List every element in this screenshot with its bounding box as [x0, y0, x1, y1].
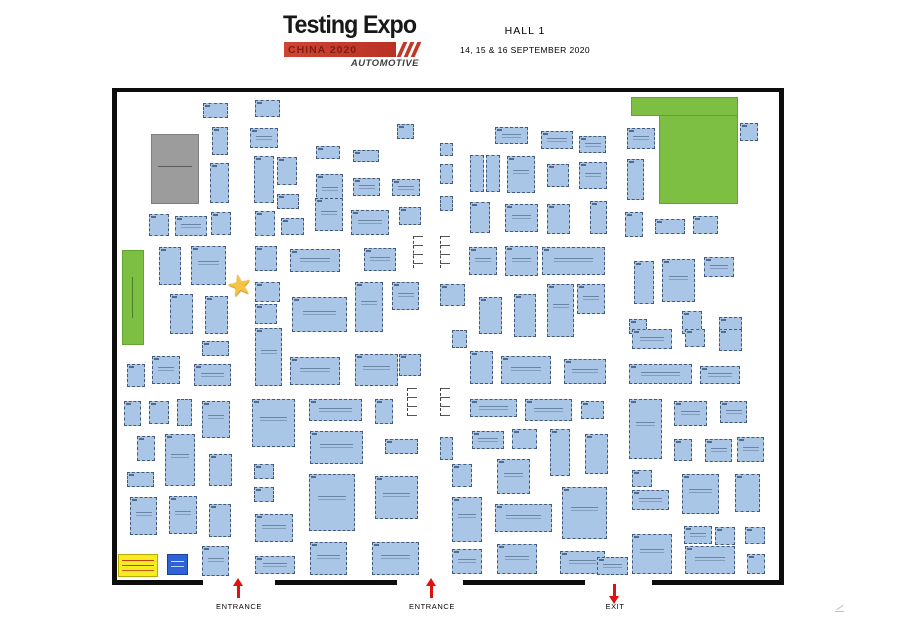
booth: [514, 294, 536, 337]
booth: [632, 329, 672, 349]
booth: [693, 216, 718, 234]
booth: [250, 128, 278, 148]
booth: [392, 282, 419, 310]
booth: [254, 156, 274, 203]
floor-plan: VISITOR RELAXATION AREA ★ ENTRANCEENTRAN…: [0, 0, 900, 636]
booth: [290, 357, 340, 385]
booth: [309, 474, 355, 531]
booth: [440, 437, 453, 460]
zone-relaxation-strip: [122, 250, 144, 345]
booth: [472, 431, 504, 449]
booth: [627, 159, 644, 200]
booth: [719, 329, 742, 351]
booth: [124, 401, 141, 426]
booth: [747, 554, 765, 574]
booth: [170, 294, 193, 334]
booth: [674, 401, 707, 426]
booth: [740, 123, 758, 141]
booth: [547, 284, 574, 337]
booth: [177, 399, 192, 426]
booth: [590, 201, 607, 234]
booth: [629, 399, 662, 459]
hall-wall: [463, 580, 585, 585]
booth: [252, 399, 295, 447]
expo-map-page: Testing Expo CHINA 2020 AUTOMOTIVE HALL …: [0, 0, 900, 636]
booth: [542, 247, 605, 275]
booth: [440, 196, 453, 211]
booth: [629, 364, 692, 384]
booth: [470, 155, 484, 192]
hall-wall: [779, 88, 784, 585]
booth: [152, 356, 180, 384]
booth: [372, 542, 419, 575]
hall-wall: [275, 580, 397, 585]
booth: [440, 143, 453, 156]
booth: [470, 351, 493, 384]
booth: [149, 401, 169, 424]
booth: [254, 464, 274, 479]
hall-wall: [112, 580, 203, 585]
booth: [634, 261, 654, 304]
booth: [685, 329, 705, 347]
booth: [562, 487, 607, 539]
booth: [211, 212, 231, 235]
hall-wall: [112, 88, 117, 585]
booth: [290, 249, 340, 272]
zone-organiser-block: [151, 134, 199, 204]
booth: [720, 401, 747, 423]
booth: [632, 470, 652, 487]
booth: [255, 304, 277, 324]
booth: [255, 100, 280, 117]
booth: [541, 131, 573, 149]
booth: [292, 297, 347, 332]
booth: [674, 439, 692, 461]
booth: [309, 399, 362, 421]
booth: [495, 127, 528, 144]
booth: [137, 436, 155, 461]
booth: [254, 487, 274, 502]
zone-relaxation-top: [631, 97, 738, 116]
booth: [512, 429, 537, 449]
booth: [351, 210, 389, 235]
booth: [127, 364, 145, 387]
booth: [277, 194, 299, 209]
booth: [130, 497, 157, 535]
booth: [315, 198, 343, 231]
booth: [203, 103, 228, 118]
booth: [497, 544, 537, 574]
booth: [470, 399, 517, 417]
booth: [501, 356, 551, 384]
booth: [497, 459, 530, 494]
booth: [149, 214, 169, 236]
booth: [452, 464, 472, 487]
booth: [507, 156, 535, 193]
booth: [399, 354, 421, 376]
star-marker-icon: ★: [224, 270, 255, 304]
booth: [495, 504, 552, 532]
zone-legend-yellow: [118, 554, 158, 577]
hall-wall: [652, 580, 784, 585]
booth: [547, 204, 570, 234]
booth: [353, 150, 379, 162]
booth: [627, 128, 655, 149]
booth: [375, 399, 393, 424]
booth: [737, 437, 764, 462]
booth: [175, 216, 207, 236]
booth: [316, 146, 340, 159]
booth: [440, 284, 465, 306]
booth: [375, 476, 418, 519]
booth: [745, 527, 765, 544]
booth: [165, 434, 195, 486]
booth: [469, 247, 497, 275]
booth: [505, 246, 538, 276]
hall-wall: [112, 88, 784, 92]
booth: [255, 246, 277, 271]
booth: [212, 127, 228, 155]
booth: [684, 526, 712, 544]
booth: [704, 257, 734, 277]
booth: [255, 328, 282, 386]
booth: [735, 474, 760, 512]
booth: [655, 219, 685, 234]
booth: [715, 527, 735, 545]
booth: [255, 514, 293, 542]
expansion-joint-icon: [440, 388, 450, 416]
booth: [705, 439, 732, 462]
booth: [479, 297, 502, 334]
booth: [364, 248, 396, 271]
expansion-joint-icon: [440, 236, 450, 268]
booth: [202, 341, 229, 356]
booth: [255, 556, 295, 574]
booth: [486, 155, 500, 192]
booth: [452, 497, 482, 542]
booth: [310, 431, 363, 464]
expansion-joint-icon: [413, 236, 423, 268]
booth: [355, 354, 398, 386]
booth: [579, 162, 607, 189]
booth: [281, 218, 304, 235]
booth: [505, 204, 538, 232]
booth: [632, 490, 669, 510]
booth: [577, 284, 605, 314]
booth: [277, 157, 297, 185]
booth: [685, 546, 735, 574]
booth: [392, 179, 420, 196]
entrance-arrow-icon: [427, 578, 437, 598]
booth: [353, 178, 380, 196]
booth: [597, 557, 628, 575]
booth: [625, 212, 643, 237]
booth: [662, 259, 695, 302]
booth: [632, 534, 672, 574]
booth: [255, 211, 275, 236]
booth: [310, 542, 347, 575]
booth: [127, 472, 154, 487]
booth: [355, 282, 383, 332]
booth: [585, 434, 608, 474]
exit-arrow-icon: [610, 584, 620, 604]
booth: [255, 282, 280, 302]
zone-legend-blue: [167, 554, 188, 575]
booth: [550, 429, 570, 476]
booth: [385, 439, 418, 454]
booth: [564, 359, 606, 384]
booth: [470, 202, 490, 233]
booth: [159, 247, 181, 285]
booth: [191, 246, 226, 285]
booth: [547, 164, 569, 187]
booth: [169, 496, 197, 534]
booth: [682, 474, 719, 514]
entrance-arrow-icon: [234, 578, 244, 598]
booth: [579, 136, 606, 153]
booth: [209, 454, 232, 486]
expansion-joint-icon: [407, 388, 417, 416]
booth: [397, 124, 414, 139]
booth: [194, 364, 231, 386]
booth: [581, 401, 604, 419]
booth: [205, 296, 228, 334]
booth: [210, 163, 229, 203]
booth: [452, 330, 467, 348]
booth: [700, 366, 740, 384]
gate-label: ENTRANCE: [409, 602, 455, 611]
booth: [525, 399, 572, 421]
gate-label: EXIT: [605, 602, 624, 611]
booth: [452, 549, 482, 574]
booth: [399, 207, 421, 225]
booth: [202, 546, 229, 576]
gate-label: ENTRANCE: [216, 602, 262, 611]
zone-relaxation-main: [659, 115, 738, 204]
corner-mark: [834, 601, 846, 615]
booth: [209, 504, 231, 537]
booth: [440, 164, 453, 184]
booth: [202, 401, 230, 438]
